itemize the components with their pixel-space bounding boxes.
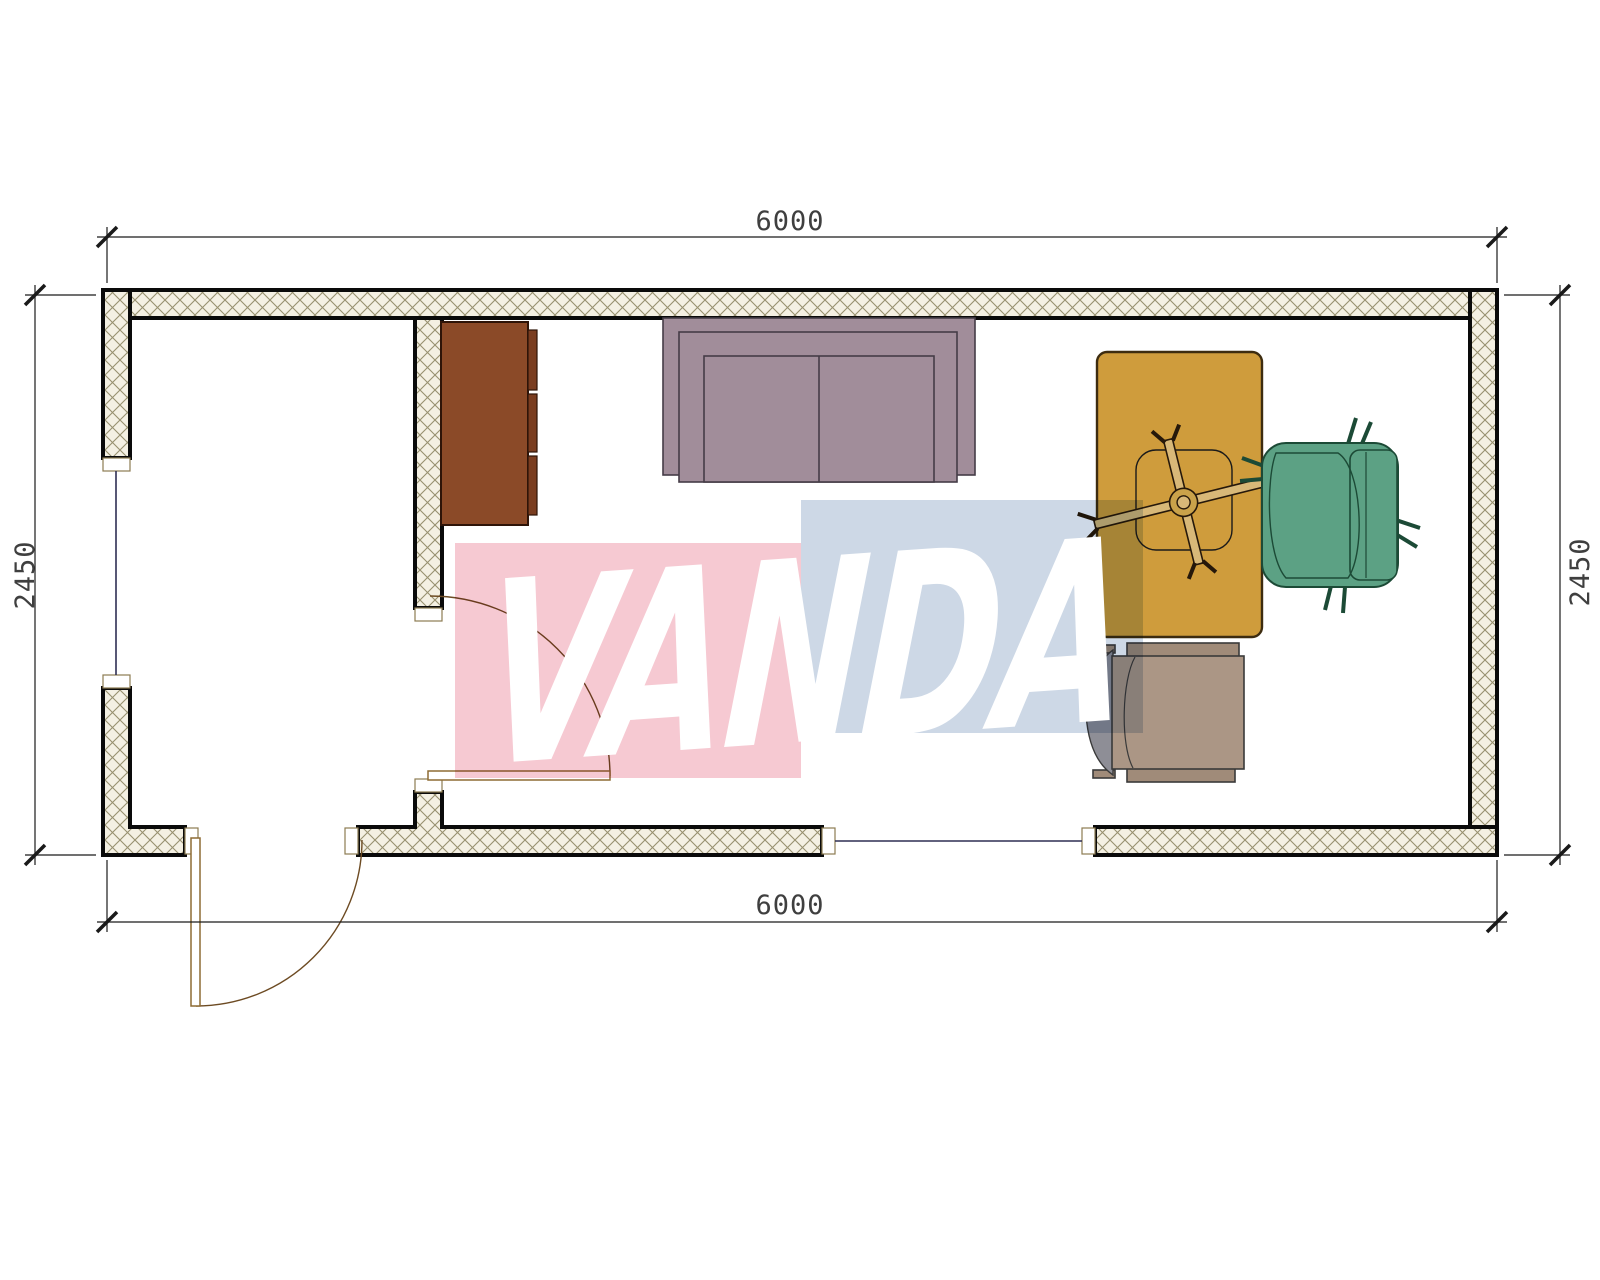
armchair-leg-top [1348,418,1371,446]
armchair-backrest [1350,450,1397,580]
wall-top [103,290,1497,318]
dimension-label-right: 2450 [1565,537,1596,606]
wall-bottom-right [1095,827,1497,855]
wall-right [1470,290,1497,855]
exterior-door-swing-arc [196,840,362,1006]
window-bottom-jamb-left [822,828,835,854]
window-left-jamb-top [103,458,130,471]
exterior-door-jamb-right [345,828,358,854]
interior-door-jamb-bottom [415,779,442,792]
dimension-label-top: 6000 [755,206,824,237]
cabinet-drawer-2 [528,394,537,452]
cabinet [441,322,537,525]
sofa [663,318,975,482]
cabinet-drawer-1 [528,330,537,390]
wall-left-upper [103,290,130,458]
watermark-text: VANDA [476,506,1134,805]
floor-plan-canvas: 6000 6000 2450 2450 VANDA [0,0,1600,1280]
armchair-leg-bottom [1325,586,1345,613]
window-left-jamb-bottom [103,675,130,688]
wall-partition [415,318,442,608]
dimension-right [1504,285,1570,865]
interior-door-jamb-top [415,608,442,621]
dimension-label-bottom: 6000 [755,890,824,921]
cabinet-drawer-3 [528,456,537,515]
window-bottom-jamb-right [1082,828,1095,854]
dimension-label-left: 2450 [10,540,41,609]
wall-left-lower-L [103,688,185,855]
armchair [1240,418,1420,613]
cabinet-body [441,322,528,525]
